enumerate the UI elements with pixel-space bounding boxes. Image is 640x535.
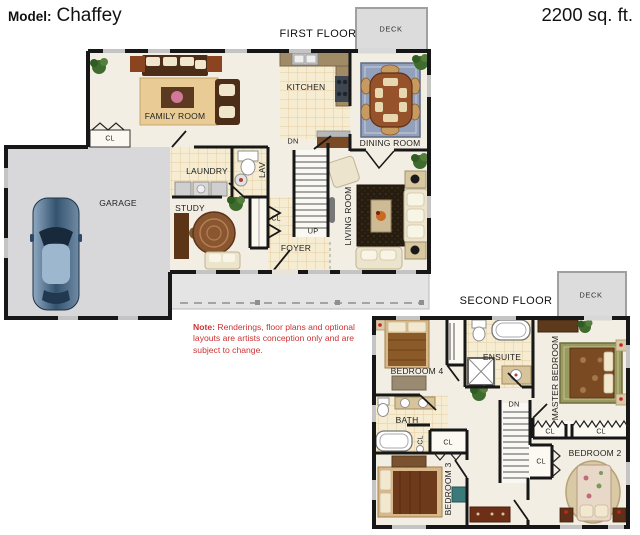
deck-label-first: DECK bbox=[379, 25, 402, 34]
second-floor-title: SECOND FLOOR bbox=[460, 295, 553, 307]
first-floor-title: FIRST FLOOR bbox=[280, 28, 357, 40]
dining-room-furniture bbox=[361, 63, 420, 137]
car bbox=[30, 198, 82, 310]
area-text: 2200 sq. ft. bbox=[541, 4, 633, 26]
room-label-dining-room: DINING ROOM bbox=[360, 138, 421, 148]
floorplan-artwork bbox=[0, 0, 640, 535]
room-label-master-bedroom: MASTER BEDROOM bbox=[550, 336, 560, 421]
note-label: Note: bbox=[193, 322, 215, 332]
room-label-bedroom2: BEDROOM 2 bbox=[569, 448, 622, 458]
porch bbox=[170, 272, 429, 309]
marker-up: UP bbox=[308, 227, 319, 236]
closet-label: CL bbox=[596, 429, 605, 436]
closet-label: CL bbox=[105, 136, 114, 143]
room-label-family-room: FAMILY ROOM bbox=[145, 111, 205, 121]
closet-label: CL bbox=[418, 435, 425, 444]
model-label: Model: bbox=[8, 9, 52, 24]
closet-label: CL bbox=[443, 440, 452, 447]
room-label-foyer: FOYER bbox=[281, 243, 311, 253]
room-label-bath: BATH bbox=[396, 415, 419, 425]
garage-floor bbox=[6, 147, 170, 318]
deck-label-second: DECK bbox=[579, 291, 602, 300]
room-label-bedroom3: BEDROOM 3 bbox=[443, 463, 453, 516]
room-label-bedroom4: BEDROOM 4 bbox=[391, 366, 444, 376]
room-label-laundry: LAUNDRY bbox=[186, 166, 228, 176]
room-label-living-room: LIVING ROOM bbox=[343, 187, 353, 246]
note-text: Renderings, floor plans and optional lay… bbox=[193, 322, 355, 355]
stairs-down bbox=[502, 403, 530, 483]
closet-label: CL bbox=[536, 459, 545, 466]
marker-dn-second: DN bbox=[508, 400, 519, 409]
floorplan-page: Model:Chaffey 2200 sq. ft. FIRST FLOOR D… bbox=[0, 0, 640, 535]
room-label-ensuite: ENSUITE bbox=[483, 352, 521, 362]
closet-label: CL bbox=[545, 429, 554, 436]
marker-dn-first: DN bbox=[287, 137, 298, 146]
room-label-kitchen: KITCHEN bbox=[287, 82, 326, 92]
first-floor-plan bbox=[6, 8, 429, 318]
closet-label: CL bbox=[271, 216, 280, 223]
second-floor-plan bbox=[374, 272, 628, 527]
disclaimer-note: Note: Renderings, floor plans and option… bbox=[193, 322, 371, 356]
room-label-garage: GARAGE bbox=[99, 198, 137, 208]
room-label-study: STUDY bbox=[175, 203, 205, 213]
room-label-lav: LAV bbox=[257, 162, 267, 178]
model-name: Chaffey bbox=[57, 5, 122, 26]
page-title: Model:Chaffey bbox=[8, 5, 122, 27]
